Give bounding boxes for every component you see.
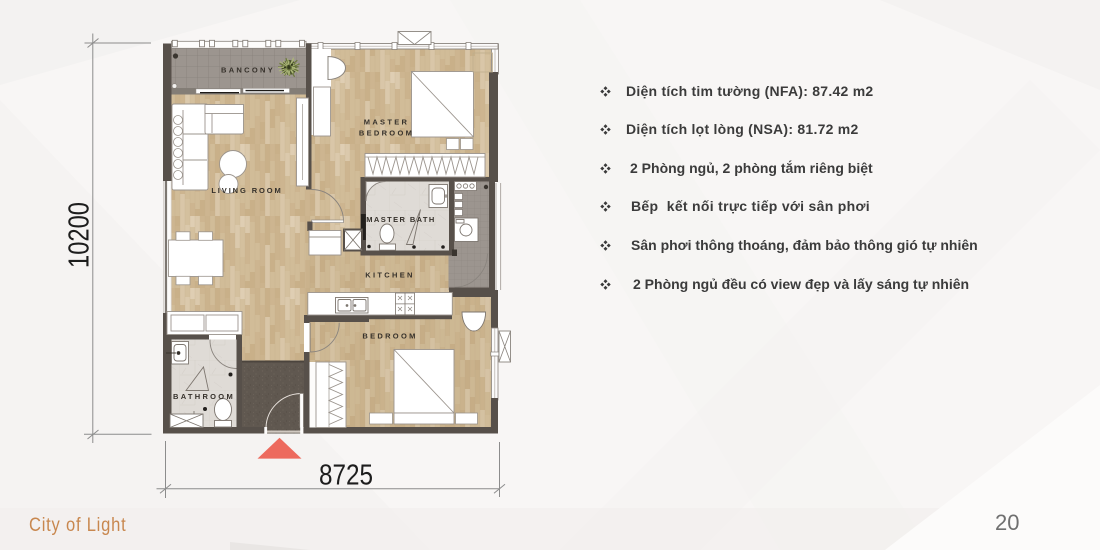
svg-text:MASTER BATH: MASTER BATH xyxy=(366,215,435,224)
svg-text:BEDROOM: BEDROOM xyxy=(359,129,414,138)
svg-text:BEDROOM: BEDROOM xyxy=(362,332,417,341)
svg-text:MASTER: MASTER xyxy=(364,118,409,127)
svg-text:LIVING ROOM: LIVING ROOM xyxy=(211,186,282,195)
svg-text:BANCONY: BANCONY xyxy=(221,66,275,75)
svg-text:BATHROOM: BATHROOM xyxy=(173,392,235,401)
svg-text:KITCHEN: KITCHEN xyxy=(365,271,414,280)
svg-text:8725: 8725 xyxy=(319,460,373,492)
svg-text:10200: 10200 xyxy=(64,202,96,268)
